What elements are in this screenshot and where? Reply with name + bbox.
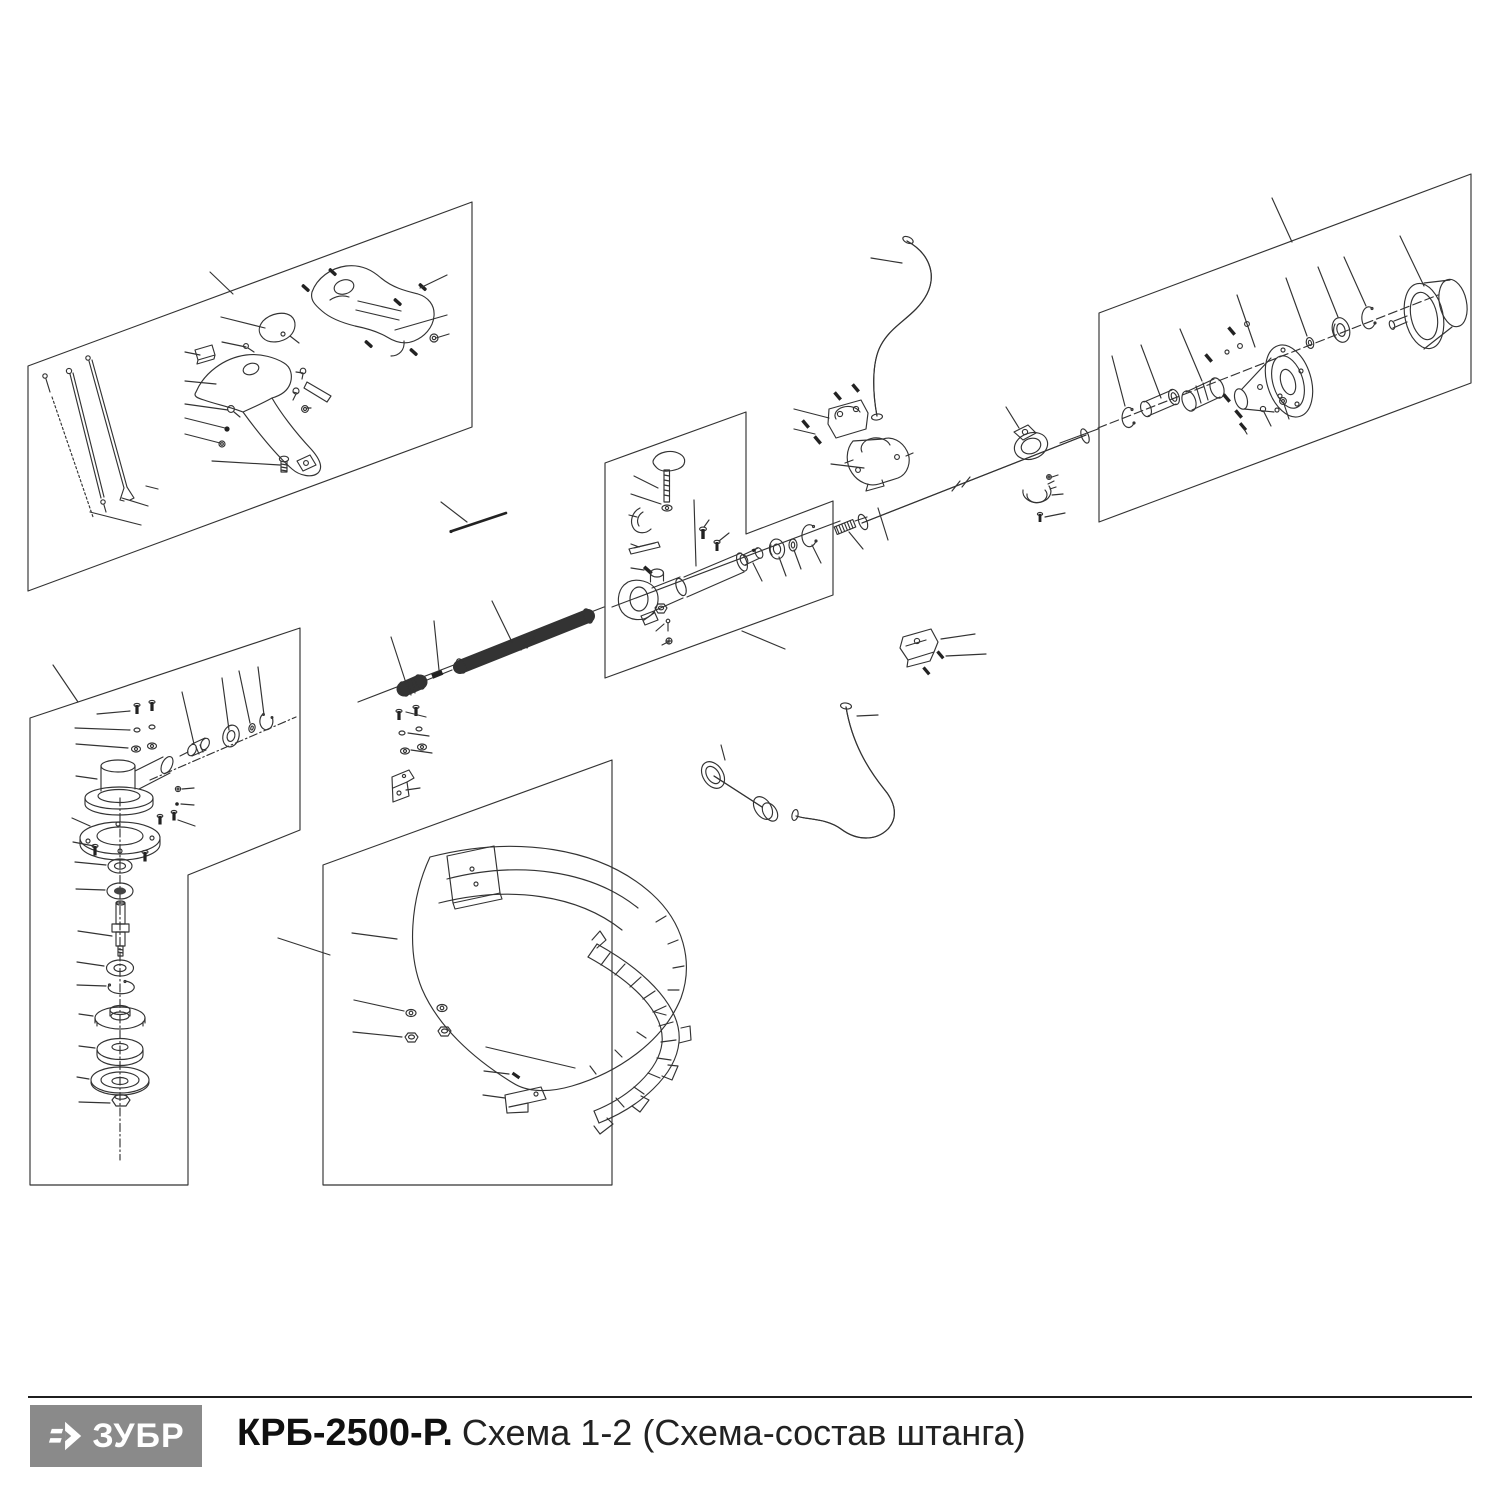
part-label-8: 8: [60, 917, 72, 943]
model-name: КРБ-2500-Р.: [237, 1412, 453, 1454]
part-42-clamp-upper: [828, 400, 868, 438]
leader-line-52: [185, 418, 225, 428]
part-label-5: 5: [61, 1000, 73, 1026]
part-72-clutch-drum: [1388, 277, 1471, 353]
leader-line-68: [1237, 295, 1255, 347]
part-6-circlip: [108, 981, 134, 994]
part-23-screws: [157, 811, 177, 825]
part-label-67: 67: [1165, 308, 1189, 334]
part-label-53: 53: [160, 390, 184, 416]
leader-line-18: [222, 678, 229, 730]
part-label-72: 72: [1384, 215, 1408, 241]
part-label-78: 78: [607, 530, 631, 556]
part-39-bracket: [900, 629, 938, 667]
leader-line-50: [212, 461, 280, 465]
part-label-15: 15: [1262, 420, 1286, 446]
part-label-66: 66: [1126, 324, 1150, 350]
leader-line-64: [1272, 198, 1292, 242]
part-14b-washers: [401, 744, 427, 754]
part-label-34: 34: [419, 600, 443, 626]
part-2-nut: [112, 1095, 130, 1106]
leader-line-69: [1286, 278, 1307, 336]
part-label-13: 13: [51, 762, 75, 788]
part-13-gear-housing: [85, 755, 175, 815]
part-69-washer: [1305, 337, 1315, 349]
scheme-name: Схема 1-2 (Схема-состав штанга): [462, 1412, 1026, 1453]
part-label-30: 30: [459, 1081, 483, 1107]
title-block: ЗУБР КРБ-2500-Р.Схема 1-2 (Схема-состав …: [0, 1396, 1500, 1500]
part-label-46: 46: [186, 253, 210, 279]
part-label-31: 31: [421, 774, 445, 800]
leader-line-75: [656, 624, 664, 631]
part-40-rod: [449, 513, 506, 533]
part-49-throttle-rod: [86, 356, 134, 501]
part-label-38: 38: [986, 640, 1010, 666]
part-15-washers: [134, 725, 155, 732]
leader-line-66: [1141, 345, 1161, 398]
part-label-2: 2: [61, 1088, 73, 1114]
part-66-sleeve: [1139, 388, 1182, 418]
part-label-61: 61: [450, 259, 474, 285]
leader-line-17: [182, 692, 194, 744]
leader-line-71: [1344, 257, 1366, 306]
leader-line-19: [239, 671, 250, 723]
part-label-48: 48: [148, 495, 172, 521]
part-sketches: [43, 235, 1471, 1134]
leader-line-80: [631, 494, 661, 504]
part-coupler-body: [618, 569, 688, 625]
leader-line-85: [779, 557, 786, 576]
region-coupler-assembly-90: [605, 412, 833, 678]
part-label-68: 68: [1222, 274, 1246, 300]
part-label-19: 19: [224, 650, 248, 676]
part-label-20: 20: [243, 646, 267, 672]
part-label-88: 88: [856, 543, 880, 569]
leader-line-5: [79, 1014, 93, 1016]
part-label-42: 42: [770, 393, 794, 419]
part-label-35: 35: [476, 580, 500, 606]
part-56-pin: [244, 344, 254, 352]
leader-line-47: [90, 512, 141, 525]
leader-line-6: [77, 985, 106, 986]
part-label-83: 83: [700, 500, 724, 526]
leader-line-3: [77, 1077, 89, 1079]
part-label-57: 57: [196, 302, 220, 328]
part-27-nuts: [405, 1027, 451, 1042]
leader-line-9: [76, 889, 105, 890]
leader-line-22: [181, 804, 194, 805]
part-label-6: 6: [59, 971, 71, 997]
zubr-arrow-icon: [47, 1417, 85, 1455]
part-85-bearing: [768, 538, 786, 560]
part-label-43: 43: [846, 243, 870, 269]
leader-line-88: [849, 532, 863, 549]
part-label-74: 74: [640, 635, 664, 661]
part-73-screw: [1239, 422, 1247, 431]
part-label-23: 23: [195, 813, 219, 839]
part-22-pin: [175, 802, 179, 806]
part-label-58: 58: [272, 358, 296, 384]
footer-divider: [28, 1396, 1472, 1398]
leader-line-84: [753, 563, 762, 581]
zubr-logo: ЗУБР: [30, 1405, 202, 1467]
part-label-12: 12: [47, 804, 71, 830]
leader-line-25: [352, 933, 397, 939]
part-label-90: 90: [784, 640, 808, 666]
part-label-63: 63: [451, 319, 475, 345]
part-80-washer: [662, 505, 672, 511]
part-label-45: 45: [990, 386, 1014, 412]
leader-line-15: [75, 728, 130, 730]
part-label-55: 55: [160, 337, 184, 363]
part-label-54: 54: [160, 367, 184, 393]
leader-line-27: [1052, 475, 1058, 477]
part-83-screw: [700, 527, 707, 539]
part-label-14: 14: [52, 730, 76, 756]
leader-line-39: [941, 634, 975, 639]
part-label-56: 56: [197, 328, 221, 354]
part-label-17: 17: [167, 671, 191, 697]
part-68-screws-washers: [1204, 322, 1282, 419]
leader-line-34: [434, 621, 439, 670]
part-label-24: 24: [254, 922, 278, 948]
part-51-washer: [219, 441, 225, 447]
part-27b-screw: [1047, 475, 1052, 480]
part-31-bracket: [392, 770, 414, 802]
leader-line-40: [441, 502, 467, 522]
region-throttle-handle-assembly-46: [28, 202, 472, 591]
part-label-15: 15: [51, 714, 75, 740]
part-label-3: 3: [59, 1063, 71, 1089]
leader-line-28: [486, 1047, 575, 1068]
part-16-screws: [134, 700, 155, 714]
leader-line-27: [353, 1032, 402, 1037]
part-26-washers: [406, 1005, 447, 1017]
part-60-washer: [302, 406, 309, 413]
part-label-25: 25: [327, 918, 351, 944]
leader-line-33: [391, 637, 405, 680]
leader-line-87: [812, 545, 821, 563]
part-34-cable-end: [427, 670, 452, 680]
leader-line-8: [78, 931, 112, 936]
leader-line-23: [178, 820, 195, 826]
part-label-52: 52: [160, 404, 184, 430]
leader-line-43: [871, 258, 902, 263]
leader-line-90: [742, 631, 785, 649]
part-label-4: 4: [61, 1032, 73, 1058]
zubr-logo-text: ЗУБР: [92, 1419, 184, 1453]
part-79-clamp-shoe: [632, 508, 651, 533]
part-88-drive-shaft-end: [834, 517, 867, 534]
leader-line-15: [408, 733, 429, 736]
leader-line-78: [631, 544, 639, 547]
part-68-bell-housing: [1232, 339, 1321, 423]
leader-line-10: [75, 862, 106, 865]
part-label-64: 64: [1256, 177, 1280, 203]
leader-line-61: [420, 275, 447, 288]
part-78-plate: [629, 542, 660, 554]
part-label-27: 27: [1058, 461, 1082, 487]
part-76-nut: [655, 604, 667, 613]
footer-title: КРБ-2500-Р.Схема 1-2 (Схема-состав штанг…: [237, 1412, 1026, 1455]
part-label-1: 1: [42, 644, 54, 670]
part-label-69: 69: [1271, 257, 1295, 283]
part-25-guard-shell: [413, 846, 687, 1091]
part-37-handlebar-left: [791, 702, 894, 838]
part-label-28: 28: [461, 1031, 485, 1057]
leader-line-32: [794, 429, 815, 434]
part-81-lock-lever: [653, 452, 685, 502]
part-45-hanger-clamp: [1011, 425, 1052, 464]
part-41-clamp-lower: [845, 438, 913, 491]
region-gear-head-assembly-1: [30, 628, 300, 1185]
leader-line-30: [483, 1095, 505, 1098]
part-21-screw: [175, 786, 180, 791]
part-label-32: 32: [770, 414, 794, 440]
leader-line-14: [76, 744, 128, 748]
leader-line-37: [857, 715, 878, 716]
leader-line-77: [631, 568, 644, 570]
leader-line-13: [76, 776, 97, 779]
part-67-drum-sleeve: [1179, 376, 1226, 413]
part-label-89: 89: [881, 534, 905, 560]
part-label-62: 62: [450, 300, 474, 326]
part-label-49: 49: [158, 477, 182, 503]
leader-line-24: [278, 938, 330, 955]
leader-line-7: [77, 962, 104, 966]
part-14-washers: [132, 743, 157, 752]
part-label-22: 22: [194, 792, 218, 818]
part-71-circlip: [1362, 307, 1376, 329]
part-label-86: 86: [791, 563, 815, 589]
part-label-33: 33: [376, 616, 400, 642]
part-23b-screw: [714, 540, 720, 551]
part-label-71: 71: [1329, 236, 1353, 262]
part-label-44: 44: [1063, 480, 1087, 506]
part-58-lever-set: [300, 368, 331, 402]
part-28-guard-strip: [588, 931, 691, 1134]
part-label-26: 26: [329, 985, 353, 1011]
leader-line-86: [794, 550, 801, 569]
exploded-parts-diagram: 4661576256635558545953605251504948474011…: [0, 0, 1500, 1500]
leader-line-82: [694, 500, 696, 566]
part-label-41: 41: [807, 449, 831, 475]
leader-line-57: [221, 317, 265, 328]
part-label-14: 14: [431, 739, 455, 765]
leader-line-36: [721, 745, 725, 760]
part-label-79: 79: [605, 501, 629, 527]
leader-line-45: [1006, 407, 1019, 428]
leader-line-1: [53, 665, 78, 702]
part-75-pin: [666, 619, 670, 631]
part-label-65: 65: [1098, 335, 1122, 361]
leader-line-58: [296, 372, 303, 373]
leader-line-4: [79, 1046, 95, 1048]
parts-diagram-page: 4661576256635558545953605251504948474011…: [0, 0, 1500, 1500]
part-label-77: 77: [607, 554, 631, 580]
part-44-clamp-ring: [1023, 481, 1056, 503]
leader-line-29: [484, 1071, 509, 1074]
part-label-16: 16: [425, 703, 449, 729]
leader-line-55: [185, 352, 200, 355]
part-label-73: 73: [1237, 428, 1261, 454]
part-59-hook: [293, 388, 299, 400]
part-33-coupler-nut: [397, 674, 426, 698]
leader-line-26: [354, 1000, 404, 1011]
region-guard-assembly-24: [323, 760, 612, 1185]
leader-line-21: [182, 788, 194, 789]
part-label-76: 76: [621, 610, 645, 636]
part-label-7: 7: [59, 948, 71, 974]
part-label-37: 37: [878, 701, 902, 727]
leader-line-16: [97, 711, 130, 714]
part-label-39: 39: [975, 620, 999, 646]
part-87-circlip: [802, 525, 817, 547]
part-84-sleeve: [739, 547, 765, 567]
part-62-housing-half: [312, 266, 435, 356]
part-label-9: 9: [58, 875, 70, 901]
leader-line-72: [1400, 236, 1424, 286]
part-label-70: 70: [1303, 246, 1327, 272]
part-86-washer: [789, 539, 797, 551]
part-label-60: 60: [306, 396, 330, 422]
leader-line-51: [185, 434, 220, 443]
part-label-81: 81: [610, 460, 634, 486]
part-label-80: 80: [607, 479, 631, 505]
part-label-32: 32: [1065, 499, 1089, 525]
leader-line-56: [222, 342, 246, 347]
part-32a-screws: [801, 383, 860, 444]
part-label-18: 18: [207, 657, 231, 683]
leader-line-23: [719, 533, 729, 541]
part-19-washer: [248, 723, 256, 733]
leader-line-38: [946, 654, 986, 656]
part-label-21: 21: [194, 775, 218, 801]
leader-line-44: [1052, 494, 1063, 495]
leader-line-83: [704, 520, 709, 527]
leader-line-12: [72, 818, 90, 826]
part-label-15: 15: [428, 722, 452, 748]
part-label-47: 47: [142, 514, 166, 540]
part-52-nut: [224, 426, 229, 431]
part-label-10: 10: [51, 848, 75, 874]
part-47-cable-spring: [43, 374, 93, 517]
part-label-50: 50: [186, 446, 210, 472]
part-17-pinion-shaft: [180, 737, 211, 757]
leader-line-62: [395, 315, 447, 330]
leader-line-65: [1112, 356, 1125, 406]
part-label-36: 36: [707, 724, 731, 750]
part-36-grip: [697, 757, 781, 824]
assembly-region-outlines: [28, 174, 1471, 1185]
leader-line-20: [258, 667, 264, 715]
leader-line-67: [1180, 329, 1202, 381]
part-label-16: 16: [73, 700, 97, 726]
part-35-shaft-tube: [454, 608, 594, 675]
leader-line-49: [146, 486, 158, 489]
part-label-51: 51: [160, 420, 184, 446]
leader-line-2: [79, 1102, 110, 1103]
leader-line-48: [122, 498, 148, 506]
leader-line-70: [1318, 267, 1338, 317]
part-label-85: 85: [776, 570, 800, 596]
part-label-84: 84: [752, 575, 776, 601]
leader-line-15: [1264, 412, 1271, 426]
leader-line-46: [210, 272, 233, 294]
part-label-27: 27: [328, 1017, 352, 1043]
leader-line-35: [492, 601, 512, 642]
part-label-87: 87: [811, 557, 835, 583]
part-29-screw: [512, 1072, 521, 1079]
part-20-circlip: [260, 714, 273, 730]
part-label-82: 82: [681, 477, 705, 503]
part-32b-screw: [1037, 513, 1042, 523]
leader-line-42: [794, 409, 829, 418]
leader-line-81: [634, 476, 658, 488]
leader-line-32: [1045, 513, 1065, 517]
part-label-11: 11: [49, 828, 72, 854]
